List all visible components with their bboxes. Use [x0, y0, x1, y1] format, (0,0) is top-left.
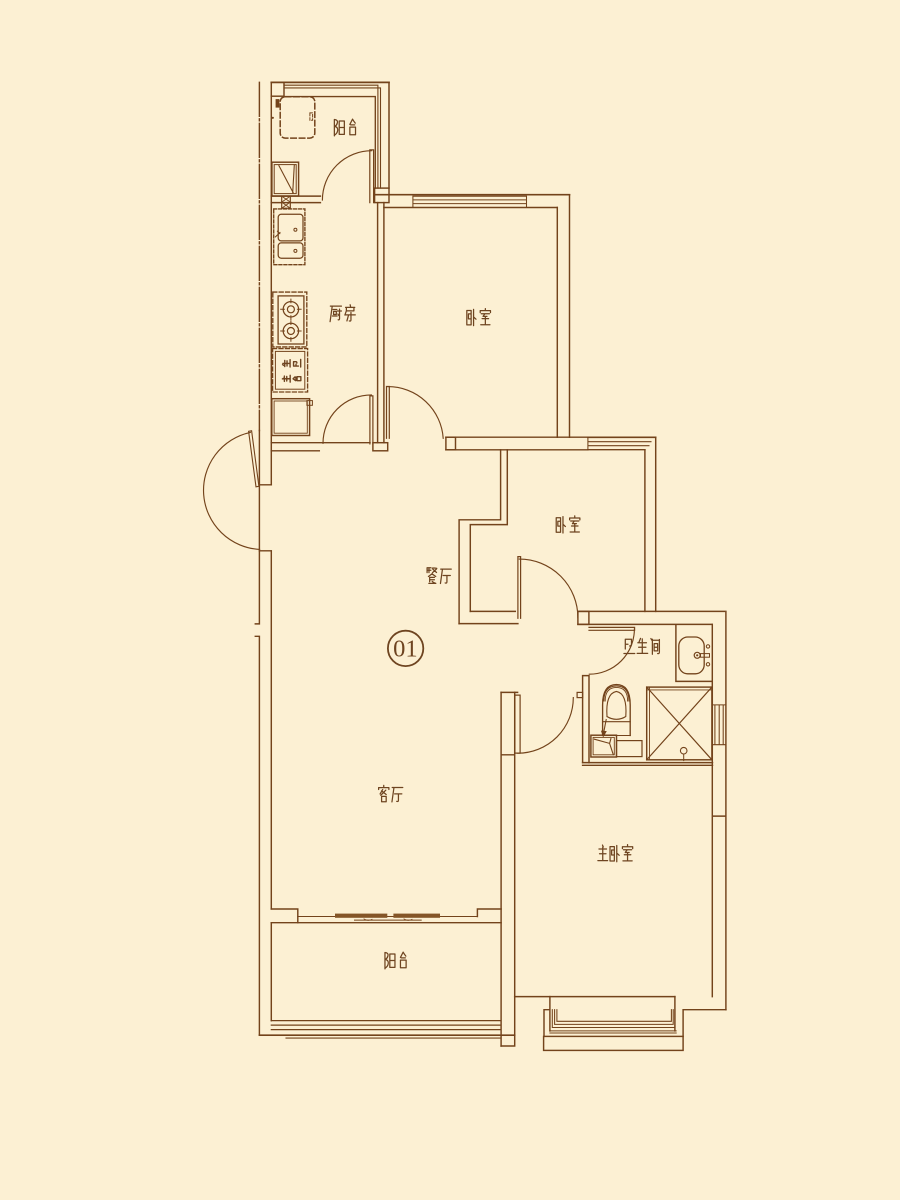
- svg-text:01: 01: [393, 635, 418, 662]
